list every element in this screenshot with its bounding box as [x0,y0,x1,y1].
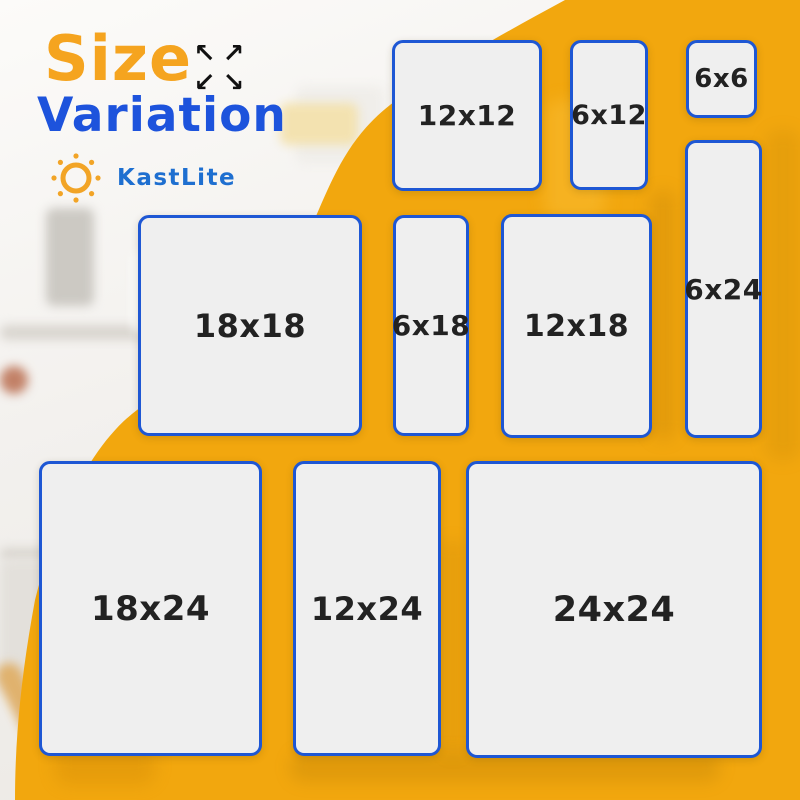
tile-label: 6x24 [684,273,763,306]
tile-label: 6x18 [392,309,471,342]
tile-label: 24x24 [553,590,676,630]
tile-label: 12x18 [524,309,629,344]
size-tile-24x24: 24x24 [466,461,762,758]
arrow-up-left-icon: ↖ [190,40,219,69]
arrow-up-right-icon: ↗ [219,40,248,69]
kastlite-logo: KastLite [48,150,236,206]
page-title-variation: Variation [37,92,287,139]
size-tile-12x24: 12x24 [293,461,441,756]
size-tile-6x24: 6x24 [685,140,762,438]
size-tile-12x18: 12x18 [501,214,652,438]
size-tile-12x12: 12x12 [392,40,542,191]
brand-name: KastLite [117,165,236,191]
tile-label: 18x18 [194,307,306,345]
size-tile-18x24: 18x24 [39,461,262,756]
size-tile-18x18: 18x18 [138,215,362,436]
tile-label: 12x12 [418,99,517,132]
sun-icon [48,150,104,206]
tile-label: 6x6 [694,64,748,94]
size-tile-6x18: 6x18 [393,215,469,436]
page-title-size: Size [44,28,192,90]
size-tile-6x12: 6x12 [570,40,648,190]
size-tile-6x6: 6x6 [686,40,757,118]
tile-label: 12x24 [311,590,423,628]
tile-label: 18x24 [91,589,210,629]
product-infographic: Size ↖ ↗ ↙ ↘ Variation KastLite 12x12 6x… [0,0,800,800]
tile-label: 6x12 [571,100,647,131]
